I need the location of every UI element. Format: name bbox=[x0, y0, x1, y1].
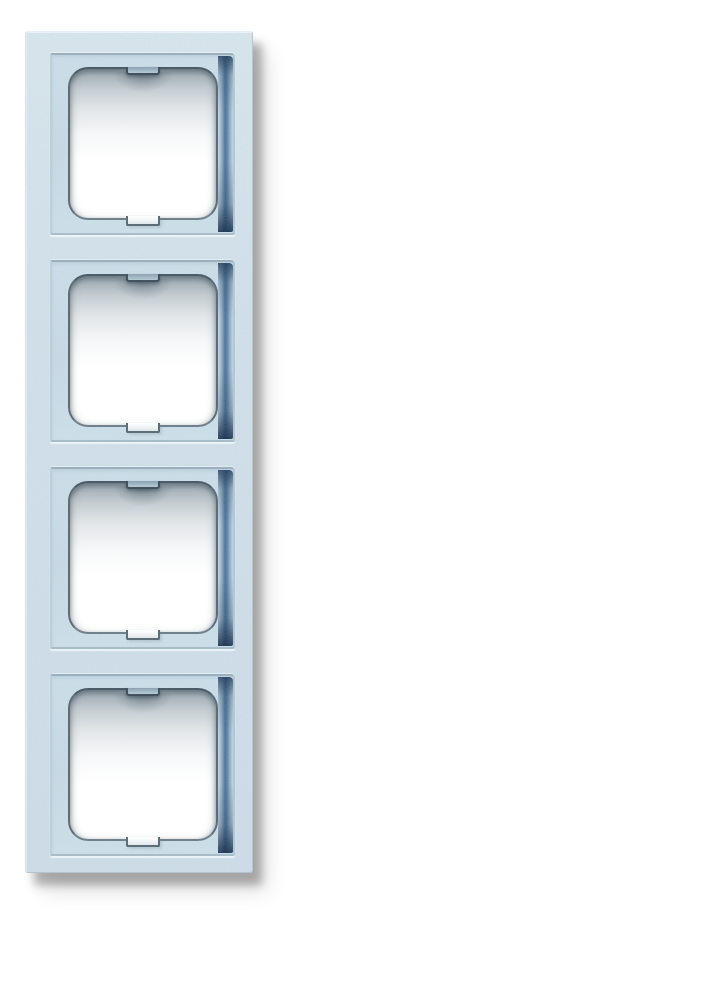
tab-inner-shadow bbox=[101, 693, 185, 723]
bottom-fixing-notch bbox=[126, 423, 160, 433]
module-opening bbox=[68, 274, 218, 427]
top-fixing-tab bbox=[126, 688, 160, 696]
module-recess-1 bbox=[50, 53, 235, 235]
tab-inner-shadow bbox=[101, 279, 185, 309]
top-fixing-tab bbox=[126, 481, 160, 489]
tab-inner-shadow bbox=[101, 72, 185, 102]
module-opening bbox=[68, 67, 218, 220]
module-opening bbox=[68, 688, 218, 841]
bottom-fixing-notch bbox=[126, 216, 160, 226]
module-opening bbox=[68, 481, 218, 634]
recess-shadow-groove bbox=[218, 56, 233, 232]
recess-shadow-groove bbox=[218, 263, 233, 439]
module-recess-4 bbox=[50, 674, 235, 856]
top-fixing-tab bbox=[126, 274, 160, 282]
switch-frame bbox=[25, 31, 253, 873]
module-recess-3 bbox=[50, 467, 235, 649]
tab-inner-shadow bbox=[101, 486, 185, 516]
module-recess-2 bbox=[50, 260, 235, 442]
bottom-fixing-notch bbox=[126, 837, 160, 847]
photo-canvas bbox=[0, 0, 709, 982]
recess-shadow-groove bbox=[218, 677, 233, 853]
bottom-fixing-notch bbox=[126, 630, 160, 640]
recess-shadow-groove bbox=[218, 470, 233, 646]
top-fixing-tab bbox=[126, 67, 160, 75]
